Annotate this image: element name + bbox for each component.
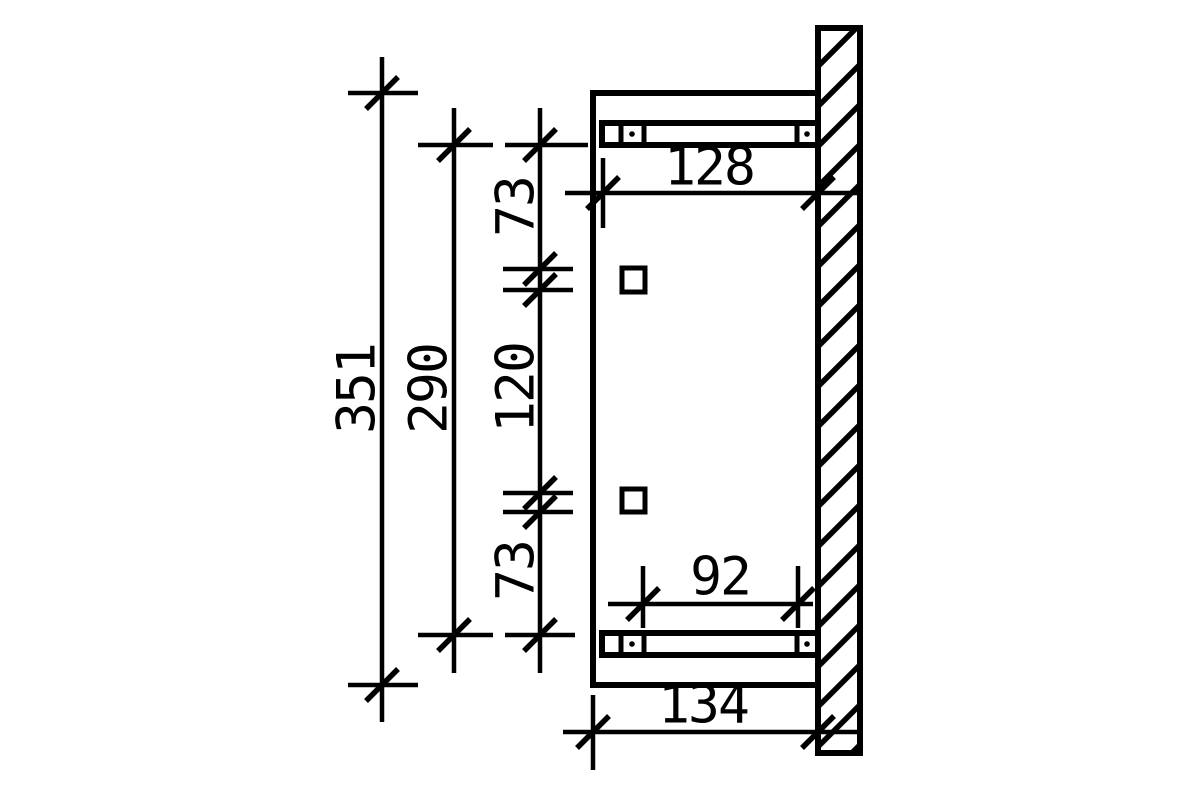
top-bar-bolt-dot-left (629, 131, 635, 137)
dim-label-73-bottom: 73 (486, 541, 547, 601)
bottom-mounting-bar (602, 633, 818, 655)
dim-label-73-top: 73 (486, 177, 547, 237)
bottom-bar-bolt-dot-right (804, 641, 810, 647)
wall-section (818, 28, 860, 753)
dim-label-290: 290 (399, 344, 460, 434)
dim-label-134: 134 (658, 675, 748, 736)
dim-label-351: 351 (327, 344, 388, 434)
wall-hatch-area (818, 28, 860, 753)
top-bar-bolt-dot-right (804, 131, 810, 137)
dim-label-120: 120 (486, 343, 547, 433)
technical-drawing-canvas: 351 290 73 120 73 128 92 134 (0, 0, 1200, 800)
bolt-hole-upper (622, 268, 645, 292)
dim-label-92: 92 (690, 547, 750, 608)
dimension-drawing: 351 290 73 120 73 128 92 134 (0, 0, 1200, 800)
bolt-hole-lower (622, 489, 645, 512)
dim-label-128: 128 (664, 137, 754, 198)
bottom-bar-bolt-dot-left (629, 641, 635, 647)
